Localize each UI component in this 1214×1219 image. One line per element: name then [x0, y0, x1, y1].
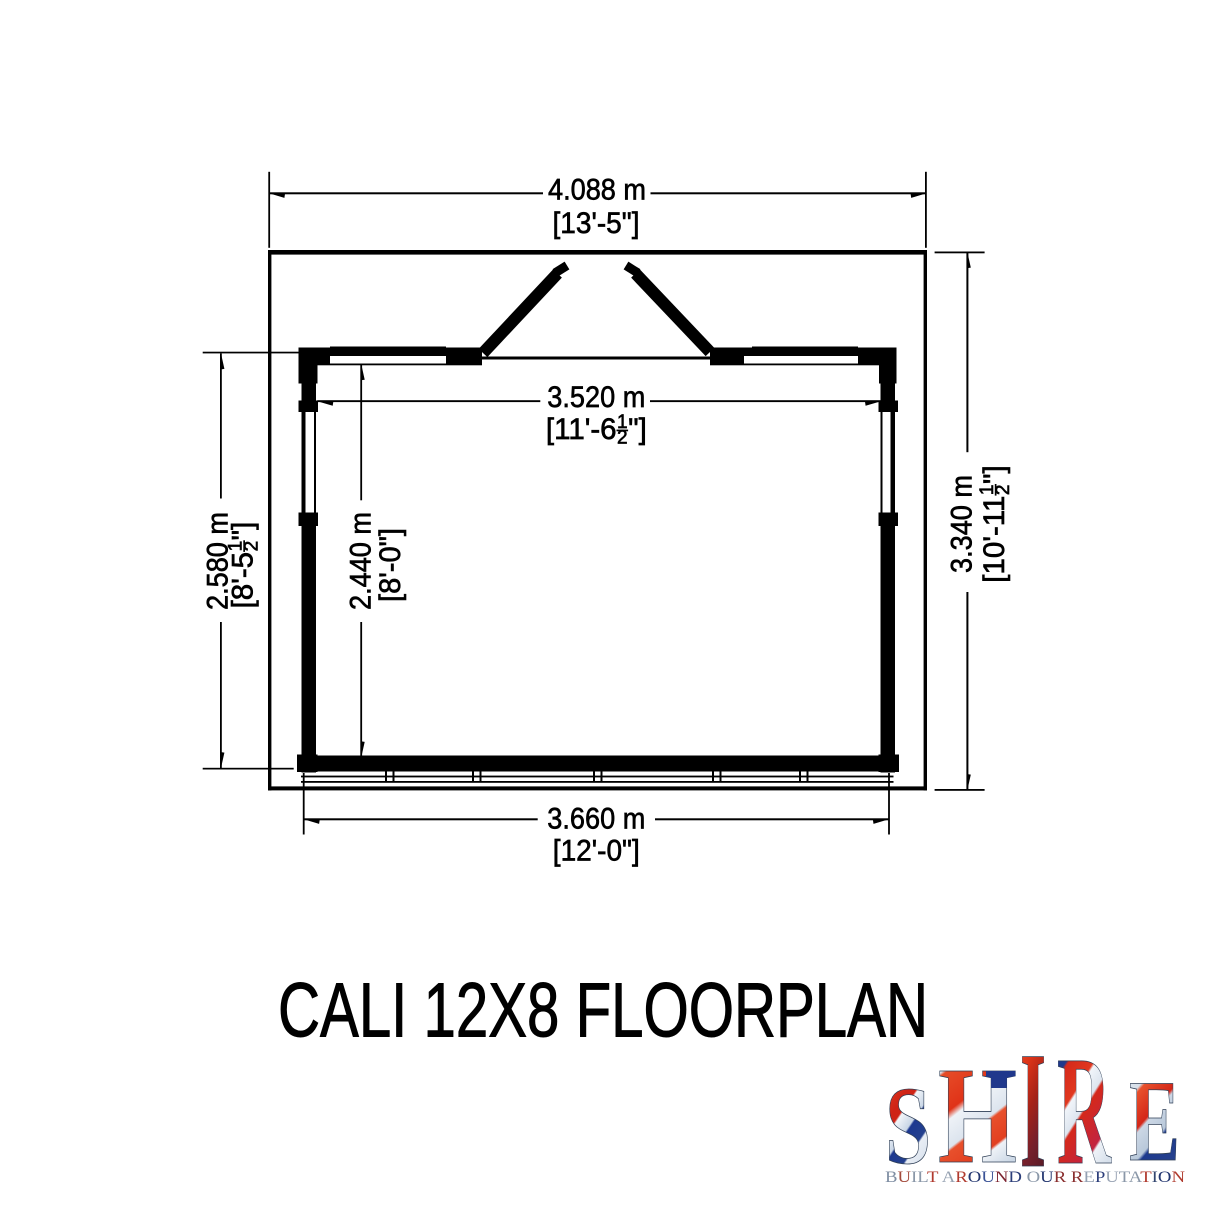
svg-text:3.340 m: 3.340 m [946, 475, 979, 573]
svg-text:"]: "] [628, 413, 647, 446]
svg-text:2: 2 [241, 541, 262, 552]
svg-text:"]: "] [978, 465, 1011, 484]
svg-text:4.088 m: 4.088 m [548, 174, 646, 207]
svg-text:[8'-5: [8'-5 [227, 552, 260, 608]
svg-text:BUILT AROUND OUR REPUTATION: BUILT AROUND OUR REPUTATION [885, 1169, 1186, 1186]
svg-text:3.660 m: 3.660 m [547, 802, 645, 835]
svg-text:2: 2 [993, 485, 1014, 496]
svg-text:[12'-0"]: [12'-0"] [553, 834, 640, 867]
svg-text:"]: "] [227, 522, 260, 541]
svg-text:E: E [1129, 1057, 1180, 1186]
svg-text:[11'-6: [11'-6 [546, 413, 617, 446]
svg-text:3.520 m: 3.520 m [547, 381, 645, 414]
svg-text:[13'-5"]: [13'-5"] [553, 207, 640, 240]
svg-text:2.440 m: 2.440 m [345, 512, 378, 610]
svg-text:CALI 12X8 FLOORPLAN: CALI 12X8 FLOORPLAN [278, 968, 928, 1054]
svg-text:[10'-11: [10'-11 [978, 496, 1011, 583]
svg-text:[8'-0"]: [8'-0"] [374, 528, 407, 602]
svg-text:2: 2 [617, 428, 628, 449]
